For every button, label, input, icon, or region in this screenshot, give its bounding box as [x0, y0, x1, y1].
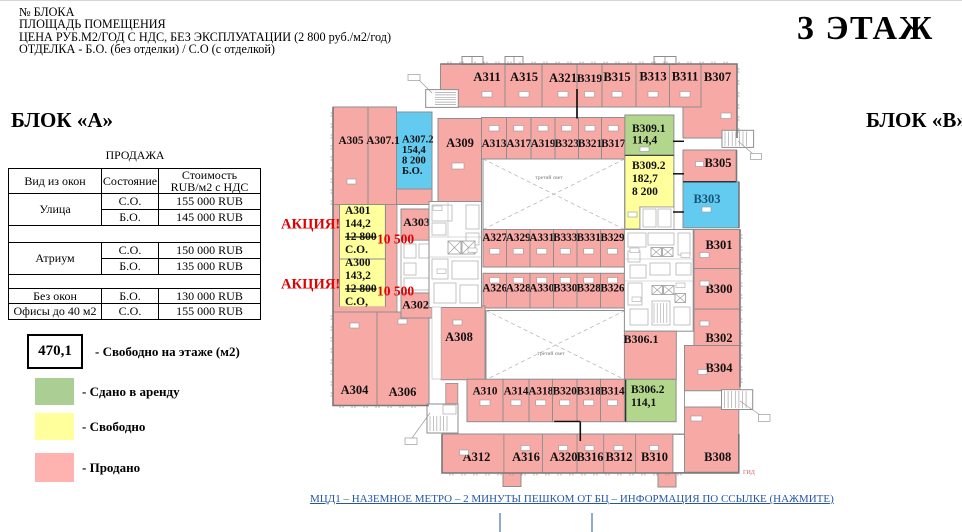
svg-text:А326: А326 [482, 283, 507, 295]
svg-text:В309.2: В309.2 [632, 160, 666, 172]
svg-text:А305: А305 [338, 135, 363, 147]
svg-text:В306.1: В306.1 [623, 332, 658, 346]
svg-text:144,2: 144,2 [345, 218, 371, 230]
svg-text:А318: А318 [528, 386, 553, 398]
svg-text:154,4: 154,4 [402, 145, 427, 156]
svg-text:В303: В303 [693, 192, 720, 206]
svg-text:В323: В323 [555, 138, 580, 150]
svg-text:С.О.: С.О. [345, 244, 368, 256]
svg-text:В301: В301 [705, 238, 732, 252]
svg-text:А310: А310 [473, 386, 498, 398]
svg-text:В326: В326 [600, 283, 625, 295]
svg-text:В315: В315 [603, 70, 630, 84]
svg-text:С.О,: С.О, [345, 296, 368, 308]
svg-text:А306: А306 [389, 385, 417, 399]
svg-text:ГИД: ГИД [743, 470, 755, 476]
svg-text:В331: В331 [577, 232, 602, 244]
svg-text:114,4: 114,4 [632, 135, 657, 147]
svg-text:АКЦИЯ!: АКЦИЯ! [281, 277, 340, 293]
svg-text:12 800: 12 800 [345, 283, 377, 295]
svg-text:А302: А302 [402, 298, 429, 312]
svg-text:В302: В302 [705, 331, 732, 345]
svg-text:В310: В310 [641, 450, 668, 464]
svg-text:114,1: 114,1 [631, 397, 656, 409]
svg-text:143,2: 143,2 [345, 270, 371, 282]
svg-text:В328: В328 [577, 283, 602, 295]
svg-text:В317: В317 [601, 138, 626, 150]
svg-text:А329: А329 [506, 232, 531, 244]
svg-text:В318: В318 [577, 386, 602, 398]
svg-text:А300: А300 [345, 257, 371, 269]
svg-text:А319: А319 [531, 138, 556, 150]
svg-text:В305: В305 [704, 156, 731, 170]
svg-text:А301: А301 [345, 205, 371, 217]
svg-text:В300: В300 [705, 282, 732, 296]
svg-text:А320: А320 [550, 450, 578, 464]
svg-text:третий свет: третий свет [535, 174, 563, 181]
svg-text:10 500: 10 500 [377, 284, 414, 299]
svg-text:А303: А303 [403, 215, 430, 229]
svg-text:В311: В311 [672, 70, 699, 84]
svg-text:А331: А331 [529, 232, 554, 244]
svg-text:А327: А327 [482, 232, 507, 244]
svg-text:А313: А313 [482, 138, 507, 150]
svg-text:В304: В304 [705, 361, 733, 375]
svg-text:А316: А316 [512, 450, 540, 464]
svg-text:А311: А311 [473, 70, 500, 84]
svg-text:А308: А308 [445, 330, 473, 344]
svg-text:В316: В316 [576, 450, 603, 464]
svg-text:В312: В312 [605, 450, 632, 464]
svg-text:В313: В313 [639, 70, 666, 84]
svg-text:А330: А330 [529, 283, 554, 295]
svg-text:8 200: 8 200 [632, 186, 658, 198]
svg-text:182,7: 182,7 [632, 173, 658, 185]
svg-text:А309: А309 [446, 136, 474, 150]
svg-text:А314: А314 [504, 386, 529, 398]
svg-text:12 800: 12 800 [345, 231, 377, 243]
svg-text:А317: А317 [506, 138, 531, 150]
svg-text:третий свет: третий свет [537, 350, 565, 357]
svg-text:В309.1: В309.1 [632, 123, 666, 135]
svg-text:В330: В330 [553, 283, 578, 295]
svg-text:Б.О.: Б.О. [402, 166, 423, 177]
svg-text:В333: В333 [553, 232, 578, 244]
svg-text:А307.2: А307.2 [402, 135, 434, 146]
svg-text:А328: А328 [506, 283, 531, 295]
svg-text:В308: В308 [704, 450, 731, 464]
svg-text:А304: А304 [341, 383, 370, 397]
svg-text:В307: В307 [704, 70, 731, 84]
svg-text:А315: А315 [510, 70, 538, 84]
svg-text:В320: В320 [553, 386, 578, 398]
svg-text:АКЦИЯ!: АКЦИЯ! [281, 217, 340, 233]
svg-text:В329: В329 [600, 232, 625, 244]
svg-text:10 500: 10 500 [377, 232, 414, 247]
svg-text:В319: В319 [577, 71, 603, 85]
svg-text:В321: В321 [578, 138, 603, 150]
svg-text:А321: А321 [549, 71, 577, 85]
svg-text:А307.1: А307.1 [366, 135, 400, 147]
svg-text:В306.2: В306.2 [631, 384, 665, 396]
svg-text:8 200: 8 200 [402, 156, 426, 167]
svg-text:В314: В314 [600, 386, 625, 398]
